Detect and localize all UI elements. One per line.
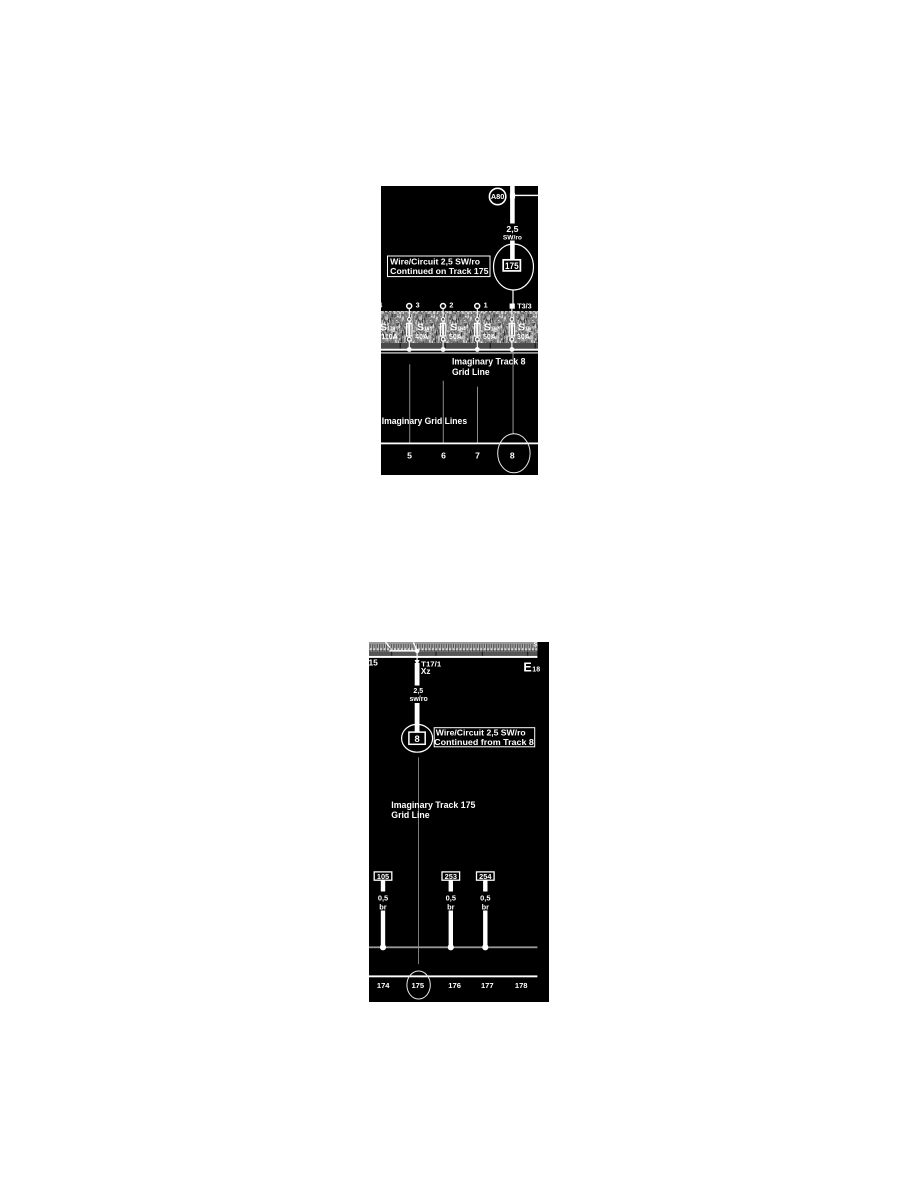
svg-text:110A: 110A xyxy=(381,334,397,341)
svg-text:SW/ro: SW/ro xyxy=(503,234,522,241)
svg-text:176: 176 xyxy=(448,981,461,990)
svg-text:S: S xyxy=(450,322,457,334)
svg-text:105: 105 xyxy=(377,872,389,881)
svg-text:2,5: 2,5 xyxy=(506,224,518,234)
svg-text:S: S xyxy=(518,322,525,334)
svg-text:Xz: Xz xyxy=(421,667,431,676)
svg-text:8: 8 xyxy=(414,733,419,744)
svg-text:175: 175 xyxy=(505,261,519,271)
svg-text:Imaginary Track 8: Imaginary Track 8 xyxy=(452,356,526,366)
svg-text:Continued from Track 8: Continued from Track 8 xyxy=(434,737,534,747)
svg-text:164: 164 xyxy=(457,327,466,333)
svg-text:E: E xyxy=(523,661,531,675)
svg-text:sw/ro: sw/ro xyxy=(409,696,427,703)
svg-text:br: br xyxy=(447,902,455,911)
svg-text:2: 2 xyxy=(449,301,453,310)
svg-text:T3/3: T3/3 xyxy=(517,301,531,310)
svg-text:Imaginary Track 175: Imaginary Track 175 xyxy=(391,800,475,810)
svg-text:6: 6 xyxy=(441,451,446,461)
svg-text:1: 1 xyxy=(484,301,488,310)
svg-text:Grid Line: Grid Line xyxy=(391,810,429,820)
svg-text:50A: 50A xyxy=(483,334,496,341)
svg-text:5: 5 xyxy=(407,451,412,461)
svg-text:0,5: 0,5 xyxy=(480,894,490,903)
svg-text:0,5: 0,5 xyxy=(446,894,456,903)
svg-text:253: 253 xyxy=(445,872,457,881)
svg-text:S: S xyxy=(484,322,491,334)
svg-text:30A: 30A xyxy=(517,334,530,341)
svg-text:S: S xyxy=(417,322,424,334)
svg-text:A80: A80 xyxy=(491,192,505,201)
svg-text:br: br xyxy=(379,902,387,911)
svg-text:Imaginary Grid Lines: Imaginary Grid Lines xyxy=(382,416,467,426)
svg-text:40A: 40A xyxy=(415,334,428,341)
svg-text:S: S xyxy=(534,643,538,649)
svg-text:4: 4 xyxy=(381,301,382,310)
svg-text:177: 177 xyxy=(481,981,494,990)
svg-text:br: br xyxy=(482,902,490,911)
svg-text:2,5: 2,5 xyxy=(413,688,423,695)
svg-text:8: 8 xyxy=(536,667,540,674)
svg-text:Grid Line: Grid Line xyxy=(452,367,490,377)
svg-text:175: 175 xyxy=(411,981,424,990)
svg-text:178: 178 xyxy=(387,327,396,333)
svg-text:15: 15 xyxy=(369,658,378,668)
svg-text:0,5: 0,5 xyxy=(378,894,388,903)
svg-text:18: 18 xyxy=(525,327,531,333)
svg-text:Continued on Track 175: Continued on Track 175 xyxy=(390,266,489,276)
svg-text:162: 162 xyxy=(491,327,500,333)
svg-text:178: 178 xyxy=(515,981,528,990)
svg-text:174: 174 xyxy=(377,981,390,990)
svg-text:8: 8 xyxy=(510,451,515,461)
svg-text:254: 254 xyxy=(479,872,492,881)
svg-text:7: 7 xyxy=(475,451,480,461)
svg-text:50A: 50A xyxy=(449,334,462,341)
svg-text:161: 161 xyxy=(424,327,433,333)
svg-text:3: 3 xyxy=(416,301,420,310)
